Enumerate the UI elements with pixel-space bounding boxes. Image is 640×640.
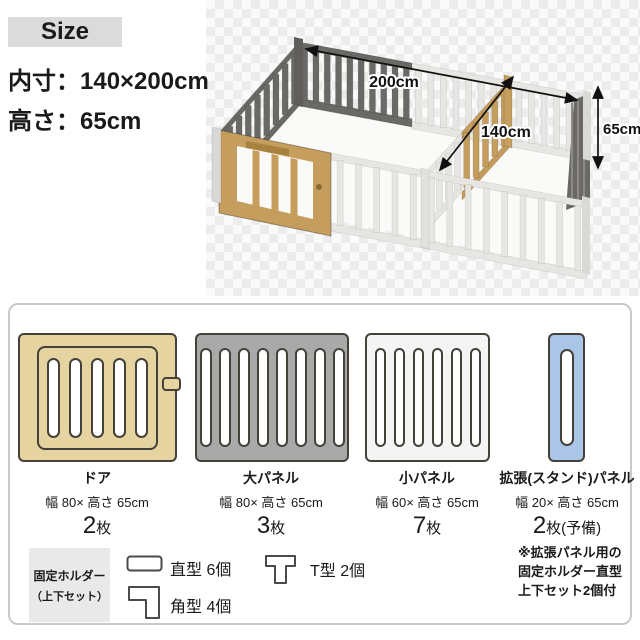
panel-slot — [257, 348, 269, 447]
panel-count: 2枚 — [8, 512, 186, 540]
panel-slot — [451, 348, 462, 447]
door-panel-info: ドア 幅 80× 高さ 65cm 2枚 — [8, 468, 186, 540]
panel-slot — [413, 348, 424, 447]
panel-count: 2枚(予備) — [478, 512, 640, 540]
straight-holder-icon — [126, 555, 163, 572]
panel-slot — [333, 348, 345, 447]
corner-holder-icon — [127, 585, 162, 621]
note-line: ※拡張パネル用の — [518, 543, 634, 562]
inner-dimensions-text: 内寸：140×200cm — [8, 61, 209, 96]
door-handle — [162, 377, 181, 391]
panel-slot — [470, 348, 481, 447]
t-holder-icon — [264, 554, 298, 585]
product-size-infographic: 200cm 140cm 65cm Size 内寸：140×200cm 高さ：65… — [0, 0, 640, 640]
expansion-panel-diagram — [548, 333, 585, 462]
panel-size: 幅 80× 高さ 65cm — [8, 492, 186, 511]
straight-holder-count: 直型 6個 — [170, 556, 231, 580]
panel-size: 幅 80× 高さ 65cm — [182, 492, 360, 511]
panel-slot — [375, 348, 386, 447]
panel-slot — [314, 348, 326, 447]
holder-label-line2: （上下セット） — [29, 588, 110, 604]
height-dimension-label: 65cm — [603, 121, 640, 138]
door-slot — [91, 358, 104, 438]
panel-name: 大パネル — [182, 468, 360, 488]
note-line: 上下セット2個付 — [518, 581, 634, 600]
door-slot — [135, 358, 148, 438]
note-line: 固定ホルダー直型 — [518, 562, 634, 581]
holder-label-line1: 固定ホルダー — [29, 567, 110, 584]
panel-slot — [238, 348, 250, 447]
depth-dimension-label: 140cm — [481, 124, 531, 141]
panel-slot — [200, 348, 212, 447]
t-holder-count: T型 2個 — [310, 557, 365, 581]
size-badge: Size — [8, 17, 122, 47]
height-text: 高さ：65cm — [8, 101, 141, 136]
door-frame — [37, 346, 158, 450]
fixing-holder-label-box: 固定ホルダー （上下セット） — [29, 548, 110, 622]
expansion-holder-note: ※拡張パネル用の 固定ホルダー直型 上下セット2個付 — [518, 543, 634, 600]
width-dimension-label: 200cm — [369, 74, 419, 91]
panel-name: 拡張(スタンド)パネル — [478, 468, 640, 488]
door-slot — [69, 358, 82, 438]
corner-holder-count: 角型 4個 — [170, 593, 231, 617]
small-panel-diagram — [365, 333, 490, 462]
panel-slot — [560, 349, 574, 446]
large-panel-info: 大パネル 幅 80× 高さ 65cm 3枚 — [182, 468, 360, 540]
panel-slot — [394, 348, 405, 447]
expansion-panel-info: 拡張(スタンド)パネル 幅 20× 高さ 65cm 2枚(予備) — [478, 468, 640, 540]
panel-slot — [432, 348, 443, 447]
panel-slot — [219, 348, 231, 447]
door-slot — [47, 358, 60, 438]
panel-slot — [276, 348, 288, 447]
door-panel-diagram — [18, 333, 177, 462]
door-slot — [113, 358, 126, 438]
large-panel-diagram — [195, 333, 349, 462]
panel-slot — [295, 348, 307, 447]
panel-name: ドア — [8, 468, 186, 488]
panel-size: 幅 20× 高さ 65cm — [478, 492, 640, 511]
panel-count: 3枚 — [182, 512, 360, 540]
